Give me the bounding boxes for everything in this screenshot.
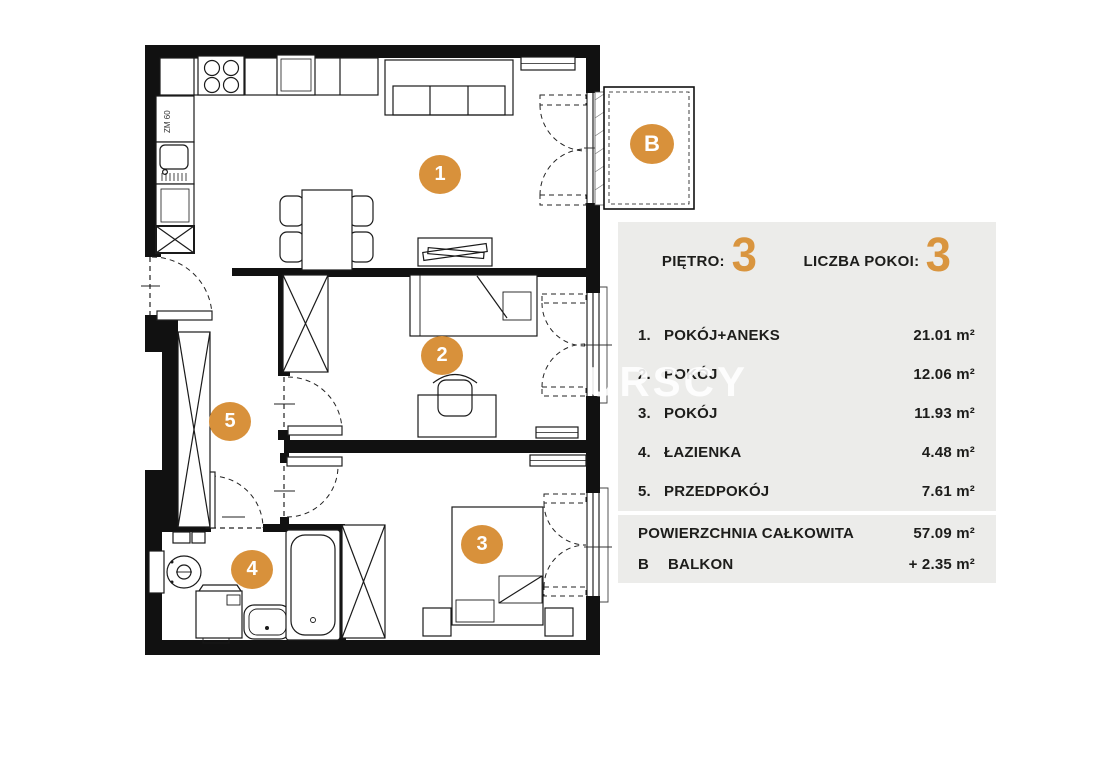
floor-label: PIĘTRO: [662,253,725,270]
hallway-wardrobe [178,332,210,527]
ventilation-shaft [156,226,194,253]
chair [349,232,373,262]
room-marker-1: 1 [419,155,461,194]
shelf-block [173,532,190,543]
room2-window-casements [542,294,586,396]
radiator-room2 [536,427,578,438]
bathroom-door [206,472,263,528]
balcony-area-row: B BALKON + 2.35 m² [618,549,996,580]
nightstand [423,608,451,636]
legend-row-5: 5. PRZEDPOKÓJ 7.61 m² [618,472,996,511]
room-legend: 1. POKÓJ+ANEKS 21.01 m² 2. POKÓJ 12.06 m… [618,316,996,511]
totals-panel: POWIERZCHNIA CAŁKOWITA 57.09 m² B BALKON… [618,515,996,583]
floor-value: 3 [732,234,757,278]
room3-window-casements [544,494,586,596]
desk [418,375,496,438]
balcony-french-doors [540,95,586,205]
legend-row-1: 1. POKÓJ+ANEKS 21.01 m² [618,316,996,355]
chair [280,196,304,226]
shelf-block [192,532,205,543]
floor-group: PIĘTRO: 3 [662,234,758,278]
stove [198,56,244,95]
wardrobe-room3 [342,525,385,638]
washing-machine [196,585,242,643]
total-area-row: POWIERZCHNIA CAŁKOWITA 57.09 m² [618,515,996,549]
chair [280,232,304,262]
room-marker-4: 4 [231,550,273,589]
toilet [149,551,201,593]
living-room-furniture [385,57,575,266]
radiator-room3 [530,455,586,466]
entrance-door [141,257,212,320]
rooms-group: LICZBA POKOI: 3 [804,234,953,278]
nightstand [545,608,573,636]
panel-header: PIĘTRO: 3 LICZBA POKOI: 3 [618,222,996,278]
dining-set [280,190,373,270]
bathtub [286,530,340,640]
rooms-value: 3 [926,234,951,278]
washbasin [244,605,290,639]
tv-cabinet [418,238,492,266]
watermark: URSCY [586,358,748,406]
single-bed [410,275,537,336]
double-bed [452,507,543,625]
dishwasher-label: ZM 60 [163,110,172,133]
legend-row-4: 4. ŁAZIENKA 4.48 m² [618,433,996,472]
fridge [277,55,315,95]
room-marker-2: 2 [421,336,463,375]
floorplan-page: ZM 60 [0,0,1097,772]
kitchen-sink [156,142,194,184]
room-marker-5: 5 [209,402,251,441]
dishwasher: ZM 60 [156,96,194,142]
radiator-living [521,57,575,70]
rooms-label: LICZBA POKOI: [804,253,920,270]
balcony-marker: B [630,124,674,164]
room-marker-3: 3 [461,525,503,564]
wardrobe-room2 [283,275,328,372]
room2-door [274,377,342,435]
sofa [385,60,513,115]
dining-table [302,190,352,270]
room3-door [274,457,342,517]
kitchen-cabinet [156,184,194,226]
dimension-brackets [600,287,608,602]
chair [349,196,373,226]
